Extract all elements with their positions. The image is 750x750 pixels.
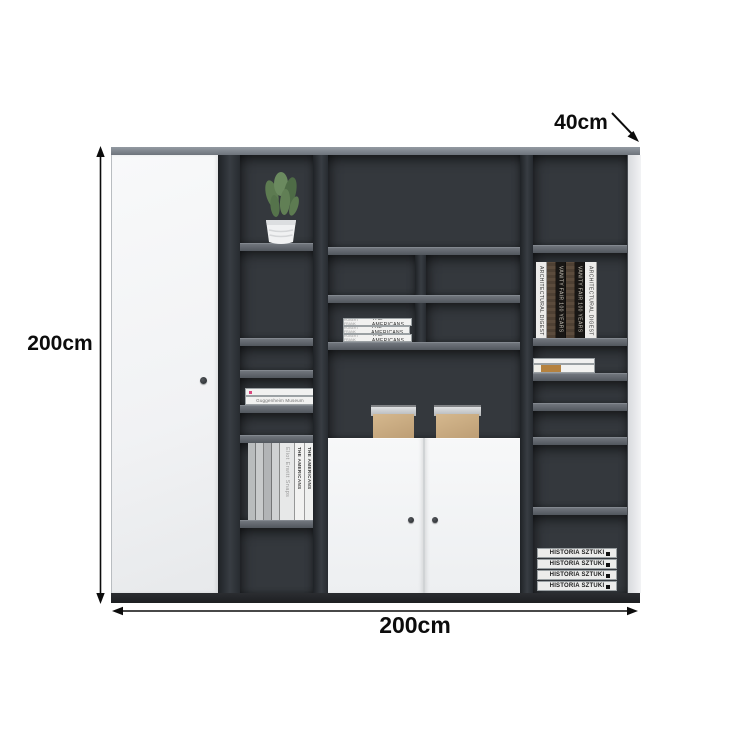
width-dimension-label: 200cm: [350, 612, 480, 639]
depth-dimension-label: 40cm: [550, 111, 612, 135]
depth-dimension-arrow: [612, 113, 639, 142]
product-dimension-diagram: Guggenheim Museum Eliot Erwitt Snaps THE…: [0, 0, 750, 750]
height-dimension-arrow: [96, 146, 104, 604]
height-dimension-label: 200cm: [20, 332, 100, 356]
